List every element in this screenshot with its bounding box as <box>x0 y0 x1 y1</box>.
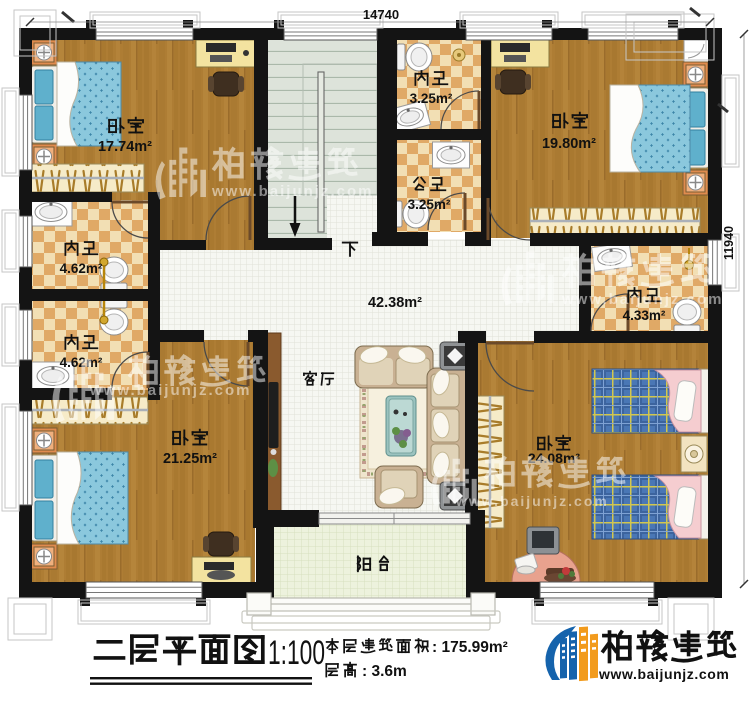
svg-text:: 175.99m²: : 175.99m² <box>432 639 508 656</box>
svg-text:4.33m²: 4.33m² <box>623 308 666 323</box>
svg-text:3.25m²: 3.25m² <box>408 197 451 212</box>
svg-text:42.38m²: 42.38m² <box>368 295 422 311</box>
svg-text:1:100: 1:100 <box>268 634 325 672</box>
svg-text:www.baijunjz.com: www.baijunjz.com <box>598 666 729 682</box>
svg-text:www.baijunjz.com: www.baijunjz.com <box>561 291 723 308</box>
svg-text:17.74m²: 17.74m² <box>98 139 152 155</box>
svg-text:www.baijunjz.com: www.baijunjz.com <box>211 183 373 200</box>
svg-text:14740: 14740 <box>363 7 399 22</box>
svg-text:: 3.6m: : 3.6m <box>362 663 407 680</box>
svg-text:21.25m²: 21.25m² <box>163 451 217 467</box>
svg-text:11940: 11940 <box>722 226 736 260</box>
svg-text:4.62m²: 4.62m² <box>60 261 103 276</box>
svg-text:www.baijunjz.com: www.baijunjz.com <box>89 382 251 399</box>
svg-text:4.62m²: 4.62m² <box>60 355 103 370</box>
svg-text:19.80m²: 19.80m² <box>542 136 596 152</box>
svg-text:3.25m²: 3.25m² <box>410 91 453 106</box>
svg-text:www.baijunjz.com: www.baijunjz.com <box>455 493 609 509</box>
